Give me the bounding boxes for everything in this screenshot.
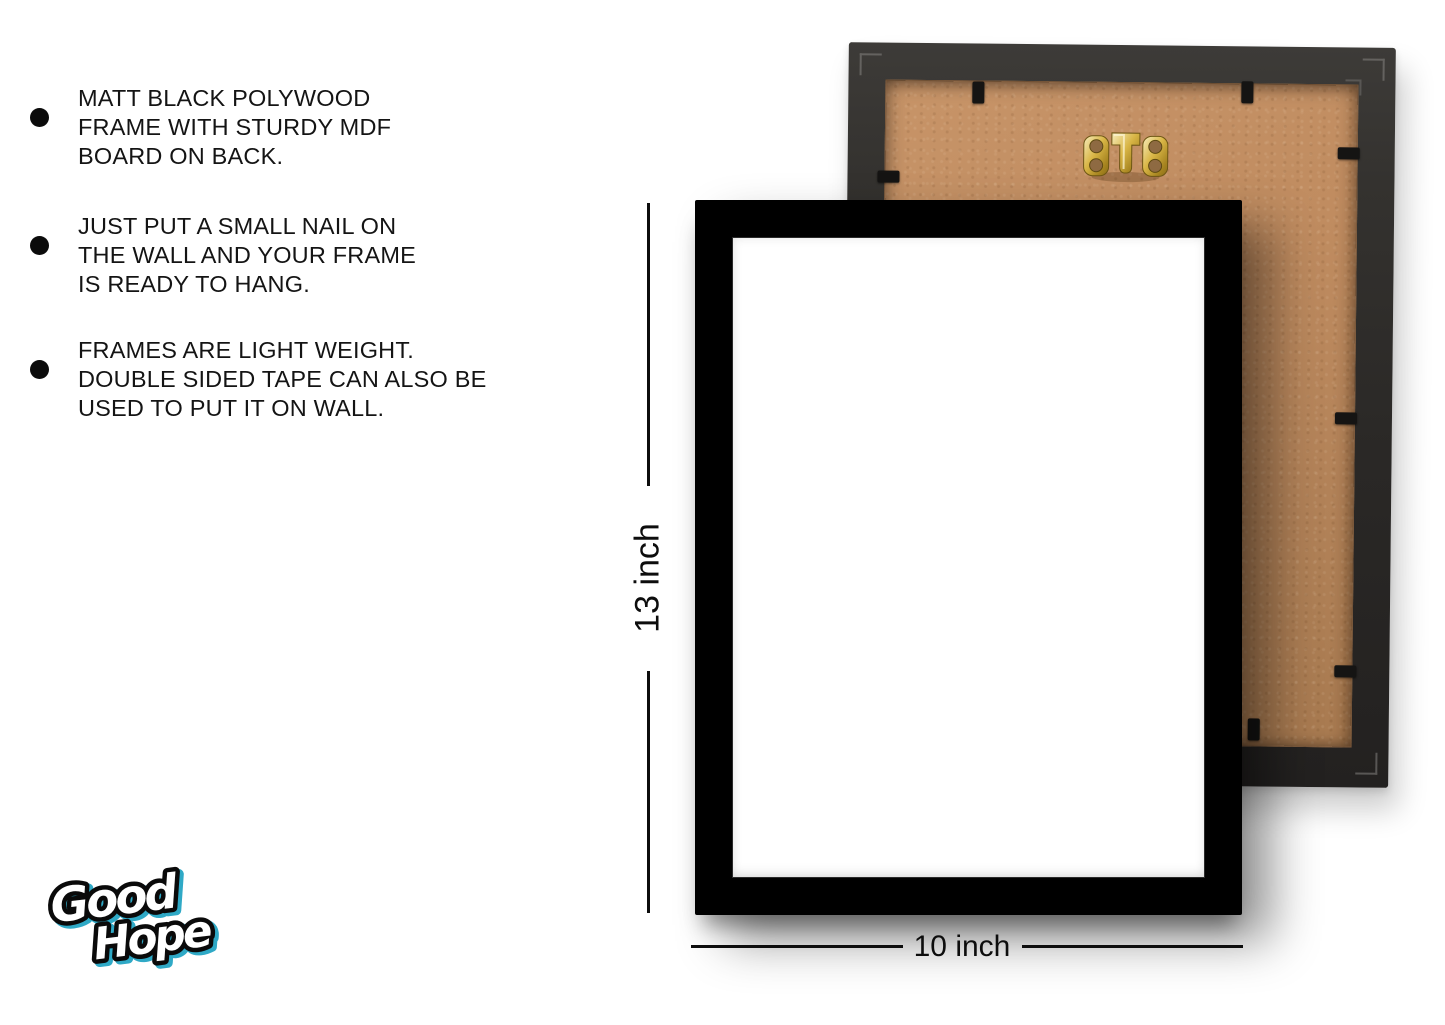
frame-front-view	[695, 200, 1242, 915]
feature-line: DOUBLE SIDED TAPE CAN ALSO BE	[78, 365, 486, 394]
feature-line: THE WALL AND YOUR FRAME	[78, 241, 416, 270]
feature-item-weight: FRAMES ARE LIGHT WEIGHT. DOUBLE SIDED TA…	[30, 336, 486, 423]
product-infographic: MATT BLACK POLYWOOD FRAME WITH STURDY MD…	[0, 0, 1445, 1025]
board-clip	[1241, 81, 1253, 103]
width-dimension-label: 10 inch	[914, 930, 1011, 964]
bullet-icon	[30, 360, 49, 379]
feature-line: FRAME WITH STURDY MDF	[78, 113, 391, 142]
hanger-hook-icon	[1081, 129, 1170, 184]
feature-line: JUST PUT A SMALL NAIL ON	[78, 212, 416, 241]
corner-vnail-mark	[860, 53, 882, 75]
height-dimension-line	[647, 203, 650, 486]
feature-text: FRAMES ARE LIGHT WEIGHT. DOUBLE SIDED TA…	[78, 336, 486, 423]
feature-text: JUST PUT A SMALL NAIL ON THE WALL AND YO…	[78, 212, 416, 299]
bullet-icon	[30, 108, 49, 127]
feature-line: BOARD ON BACK.	[78, 142, 391, 171]
board-clip	[877, 170, 899, 182]
height-dimension-label: 13 inch	[629, 523, 668, 633]
board-clip	[972, 81, 984, 103]
board-clip	[1334, 665, 1356, 677]
width-dimension-line	[691, 945, 903, 948]
board-clip	[1248, 718, 1260, 740]
feature-text: MATT BLACK POLYWOOD FRAME WITH STURDY MD…	[78, 84, 391, 171]
frame-front-opening	[732, 237, 1205, 878]
feature-line: USED TO PUT IT ON WALL.	[78, 394, 486, 423]
height-dimension-line	[647, 671, 650, 913]
bullet-icon	[30, 236, 49, 255]
board-clip	[1335, 412, 1357, 424]
corner-vnail-mark	[1363, 59, 1385, 81]
width-dimension-line	[1022, 945, 1243, 948]
feature-line: FRAMES ARE LIGHT WEIGHT.	[78, 336, 486, 365]
good-hope-logo: Good Hope Good Hope	[40, 866, 220, 976]
feature-item-hanging: JUST PUT A SMALL NAIL ON THE WALL AND YO…	[30, 212, 416, 299]
board-clip	[1338, 147, 1360, 159]
feature-line: IS READY TO HANG.	[78, 270, 416, 299]
feature-item-material: MATT BLACK POLYWOOD FRAME WITH STURDY MD…	[30, 84, 391, 171]
corner-vnail-mark	[1355, 753, 1377, 775]
feature-line: MATT BLACK POLYWOOD	[78, 84, 391, 113]
